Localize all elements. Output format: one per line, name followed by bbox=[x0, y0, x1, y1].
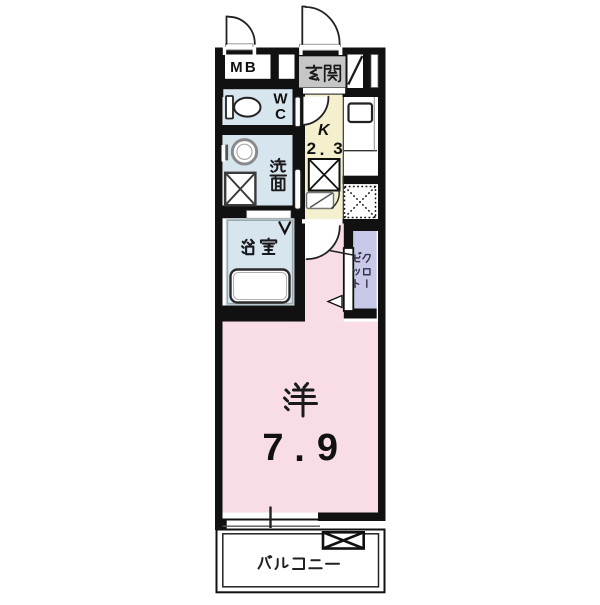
svg-text:K: K bbox=[318, 122, 331, 139]
svg-text:C: C bbox=[275, 106, 286, 123]
svg-text:W: W bbox=[273, 90, 288, 107]
svg-text:.: . bbox=[320, 140, 325, 159]
svg-text:9: 9 bbox=[317, 427, 338, 469]
svg-text:2: 2 bbox=[307, 139, 316, 158]
svg-text:3: 3 bbox=[333, 139, 342, 158]
svg-text:.: . bbox=[294, 428, 305, 470]
svg-text:7: 7 bbox=[262, 427, 283, 469]
svg-text:MB: MB bbox=[230, 59, 258, 76]
